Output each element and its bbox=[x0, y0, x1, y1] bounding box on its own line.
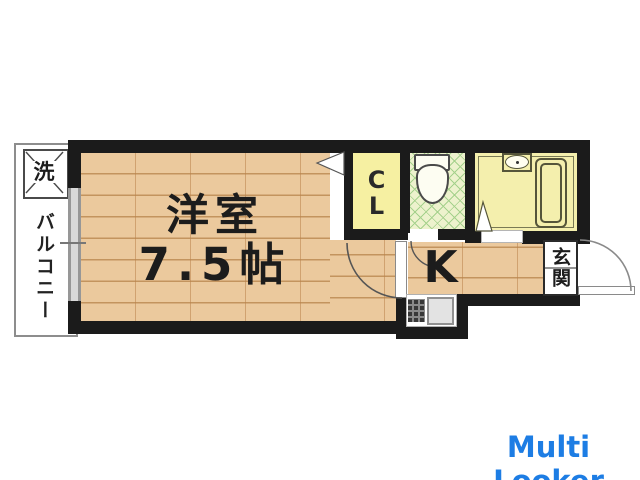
shower-icon bbox=[476, 202, 492, 231]
kitchen-label: K bbox=[418, 244, 463, 292]
washing-machine-label: 洗 bbox=[23, 149, 65, 195]
entrance-label: 玄関 bbox=[548, 242, 574, 294]
closet-label-line1: C bbox=[368, 167, 386, 193]
living-room-door-arc bbox=[347, 243, 402, 298]
living-room-label: 洋室 7.5帖 bbox=[95, 186, 335, 296]
closet-door-arrow-icon bbox=[317, 152, 344, 175]
entrance-door-arc bbox=[580, 240, 631, 291]
closet-label: C L bbox=[353, 158, 400, 228]
floor-plan-image: 洋室 7.5帖 C L K 玄関 バルコニー 洗 Multi Looker bbox=[0, 0, 640, 480]
watermark-logo: Multi Looker bbox=[466, 430, 631, 466]
living-room-name: 洋室 bbox=[166, 193, 264, 240]
closet-label-line2: L bbox=[369, 193, 384, 219]
balcony-label: バルコニー bbox=[32, 201, 58, 333]
living-room-size: 7.5帖 bbox=[139, 240, 292, 290]
washing-machine-label-text: 洗 bbox=[33, 161, 56, 183]
